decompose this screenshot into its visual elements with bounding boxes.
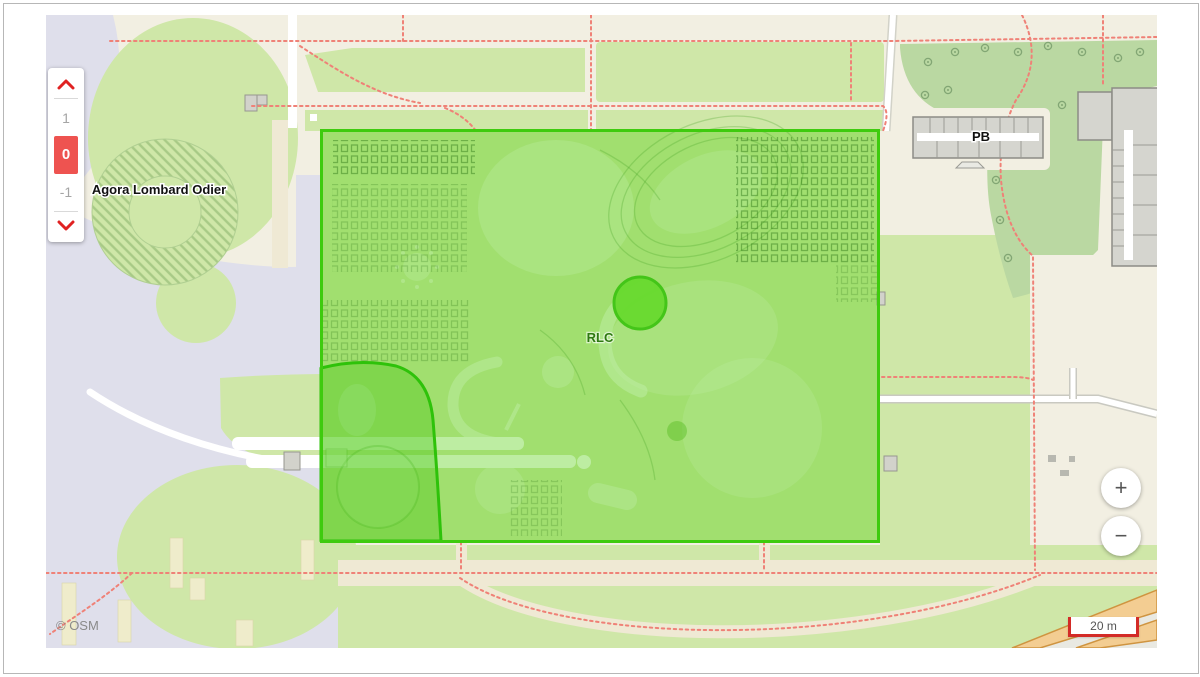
floor-down-button[interactable] (55, 218, 77, 234)
map-viewport[interactable]: Agora Lombard Odier PB RLC 1 0 -1 + (46, 15, 1157, 648)
zoom-out-button[interactable]: − (1101, 516, 1141, 556)
floor-button-minus1[interactable]: -1 (51, 179, 81, 205)
divider (54, 98, 78, 99)
floor-up-button[interactable] (55, 76, 77, 92)
scale-bar: 20 m (1068, 617, 1139, 637)
label-pb: PB (972, 129, 990, 144)
label-rlc: RLC (587, 330, 614, 345)
map-canvas[interactable]: Agora Lombard Odier PB RLC (46, 15, 1157, 648)
chevron-down-icon (57, 220, 75, 232)
zoom-in-button[interactable]: + (1101, 468, 1141, 508)
map-window: Agora Lombard Odier PB RLC 1 0 -1 + (3, 3, 1199, 674)
chevron-up-icon (57, 78, 75, 90)
label-agora: Agora Lombard Odier (92, 182, 226, 197)
floor-button-0-active[interactable]: 0 (54, 136, 78, 174)
osm-attribution[interactable]: © OSM (56, 618, 99, 633)
selected-zone-polygon[interactable] (321, 362, 441, 541)
divider (54, 211, 78, 212)
floor-button-1[interactable]: 1 (51, 105, 81, 131)
poi-circle-marker[interactable] (614, 277, 666, 329)
scale-bar-label: 20 m (1090, 619, 1117, 633)
floor-selector: 1 0 -1 (48, 68, 84, 242)
